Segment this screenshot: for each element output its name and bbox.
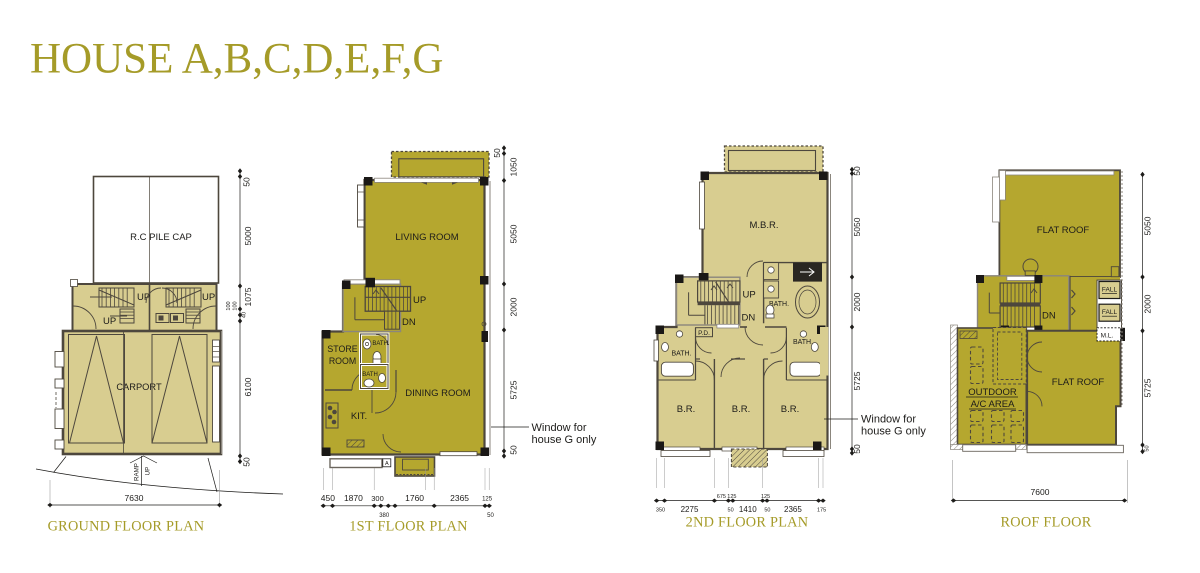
svg-text:DINING ROOM: DINING ROOM (405, 388, 471, 399)
svg-text:LIVING ROOM: LIVING ROOM (395, 232, 458, 243)
svg-text:2000: 2000 (509, 297, 519, 316)
svg-text:5725: 5725 (852, 371, 862, 390)
svg-text:UP: UP (103, 316, 116, 327)
svg-text:2000: 2000 (1143, 294, 1153, 313)
svg-text:HOUSE A,B,C,D,E,F,G: HOUSE A,B,C,D,E,F,G (30, 36, 443, 83)
svg-text:A: A (385, 461, 389, 467)
svg-text:FALL: FALL (1102, 287, 1118, 294)
svg-text:125: 125 (727, 494, 736, 500)
svg-text:Window for: Window for (861, 414, 916, 426)
svg-text:300: 300 (371, 494, 384, 503)
svg-text:5725: 5725 (1143, 378, 1153, 397)
svg-text:1050: 1050 (509, 157, 519, 176)
svg-text:FLAT ROOF: FLAT ROOF (1037, 225, 1090, 236)
svg-text:DN: DN (402, 317, 416, 328)
svg-text:A/C AREA: A/C AREA (971, 399, 1015, 410)
svg-text:50: 50 (852, 444, 862, 454)
svg-text:UP: UP (202, 292, 215, 303)
svg-text:2000: 2000 (852, 292, 862, 311)
svg-text:450: 450 (321, 493, 335, 503)
svg-text:R.C PILE CAP: R.C PILE CAP (130, 232, 192, 243)
svg-text:GROUND FLOOR PLAN: GROUND FLOOR PLAN (48, 519, 205, 535)
svg-text:UP: UP (145, 467, 152, 476)
svg-text:50: 50 (509, 445, 519, 455)
svg-text:2365: 2365 (450, 493, 469, 503)
svg-text:2ND FLOOR PLAN: 2ND FLOOR PLAN (686, 515, 809, 531)
svg-text:M.B.R.: M.B.R. (749, 220, 778, 231)
svg-text:BATH.: BATH. (372, 341, 390, 347)
svg-text:UP: UP (137, 292, 150, 303)
svg-text:B.R.: B.R. (677, 404, 695, 415)
svg-text:STORE: STORE (327, 344, 357, 354)
svg-text:50: 50 (1145, 445, 1151, 451)
svg-text:BATH.: BATH. (793, 339, 813, 346)
svg-text:7630: 7630 (125, 493, 144, 503)
svg-text:FLAT ROOF: FLAT ROOF (1052, 377, 1105, 388)
svg-text:1870: 1870 (344, 493, 363, 503)
svg-text:100: 100 (233, 301, 239, 310)
svg-text:ROOM: ROOM (329, 356, 356, 366)
svg-text:B.R.: B.R. (732, 404, 750, 415)
svg-text:house G only: house G only (861, 426, 926, 438)
svg-text:40: 40 (242, 312, 248, 318)
svg-text:50: 50 (852, 166, 862, 176)
svg-text:M.L.: M.L. (1101, 333, 1114, 340)
svg-text:50: 50 (728, 508, 734, 514)
svg-text:ROOF FLOOR: ROOF FLOOR (1000, 515, 1091, 531)
svg-text:125: 125 (761, 494, 770, 500)
svg-text:50: 50 (242, 457, 252, 467)
svg-text:5050: 5050 (852, 217, 862, 236)
svg-text:RAMP: RAMP (134, 463, 141, 481)
svg-text:UP: UP (413, 295, 426, 306)
svg-text:5050: 5050 (1143, 216, 1153, 235)
svg-text:5050: 5050 (509, 224, 519, 243)
svg-text:1410: 1410 (739, 505, 757, 514)
svg-text:50: 50 (764, 508, 770, 514)
svg-text:KIT.: KIT. (351, 411, 367, 422)
svg-text:DN: DN (1042, 311, 1056, 322)
svg-text:B.R.: B.R. (781, 404, 799, 415)
svg-text:OUTDOOR: OUTDOOR (968, 387, 1017, 398)
svg-text:P.D.: P.D. (698, 330, 710, 337)
svg-text:175: 175 (817, 508, 826, 514)
svg-text:2365: 2365 (784, 505, 802, 514)
svg-text:50: 50 (487, 513, 494, 519)
svg-text:CARPORT: CARPORT (116, 382, 162, 392)
svg-text:100: 100 (226, 301, 232, 310)
svg-text:675: 675 (717, 494, 726, 500)
svg-text:6100: 6100 (243, 377, 253, 396)
svg-text:UP: UP (743, 290, 756, 301)
svg-text:350: 350 (656, 508, 665, 514)
svg-text:5000: 5000 (243, 226, 253, 245)
svg-text:5725: 5725 (509, 380, 519, 399)
svg-text:50: 50 (242, 177, 252, 187)
svg-text:1760: 1760 (405, 493, 424, 503)
svg-text:7600: 7600 (1031, 487, 1050, 497)
svg-text:2275: 2275 (681, 505, 699, 514)
svg-text:50: 50 (492, 148, 502, 158)
svg-text:BATH: BATH (362, 372, 378, 378)
svg-text:125: 125 (482, 497, 493, 503)
svg-text:BATH.: BATH. (671, 351, 691, 358)
svg-text:1ST FLOOR PLAN: 1ST FLOOR PLAN (349, 519, 467, 535)
svg-text:1075: 1075 (243, 287, 253, 306)
svg-text:DN: DN (742, 313, 756, 324)
svg-text:Window for: Window for (532, 422, 587, 434)
svg-text:house G only: house G only (532, 434, 597, 446)
svg-text:FALL: FALL (1102, 309, 1118, 316)
